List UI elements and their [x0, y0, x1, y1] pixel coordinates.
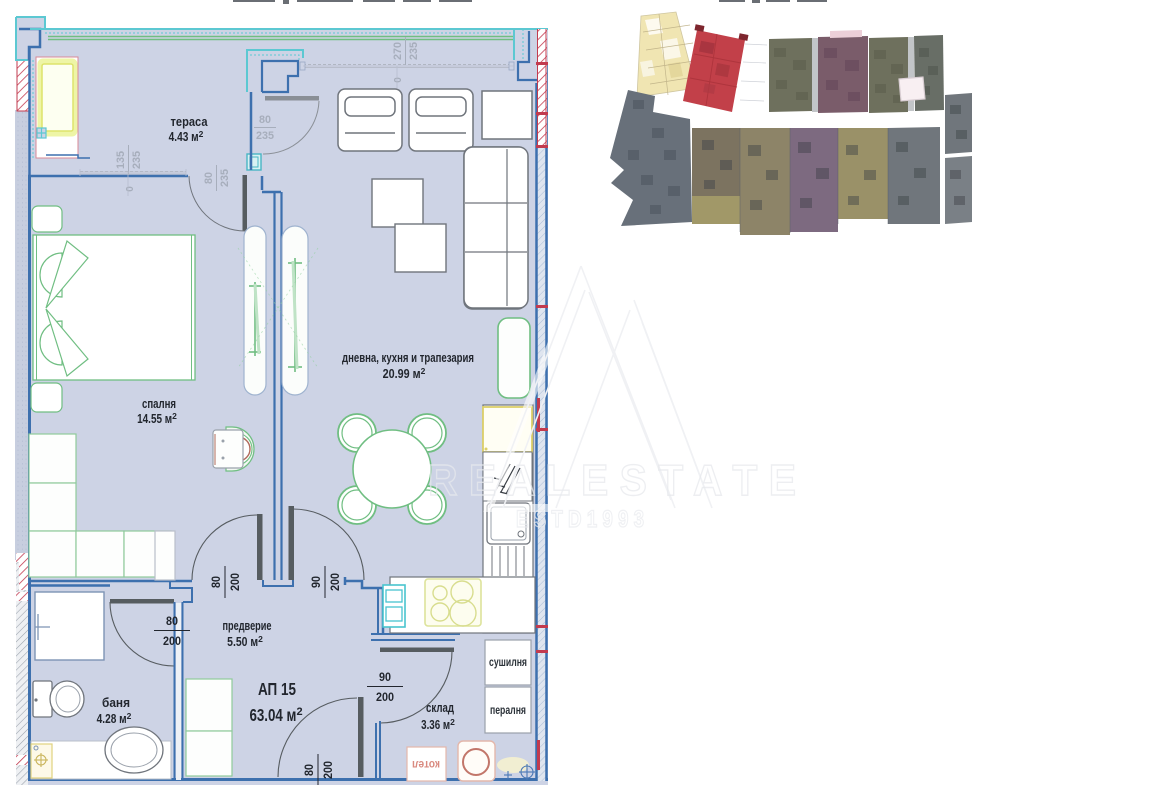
svg-text:63.04 м2: 63.04 м2 — [249, 705, 302, 725]
svg-text:20.99 м2: 20.99 м2 — [383, 366, 426, 381]
svg-text:235: 235 — [256, 130, 274, 142]
svg-text:90: 90 — [379, 672, 391, 684]
svg-text:80: 80 — [166, 616, 178, 628]
svg-text:235: 235 — [131, 151, 143, 169]
svg-text:0: 0 — [125, 186, 136, 192]
svg-text:3.36 м2: 3.36 м2 — [421, 717, 455, 732]
svg-text:270: 270 — [392, 42, 404, 60]
svg-text:склад: склад — [426, 701, 454, 715]
svg-text:АП 15: АП 15 — [258, 679, 296, 699]
svg-text:135: 135 — [115, 151, 127, 169]
svg-text:235: 235 — [219, 169, 231, 187]
svg-text:80: 80 — [259, 114, 271, 126]
svg-text:200: 200 — [323, 761, 335, 779]
svg-text:спалня: спалня — [142, 397, 176, 411]
svg-text:дневна, кухня и трапезария: дневна, кухня и трапезария — [342, 351, 474, 365]
svg-text:0: 0 — [393, 77, 404, 83]
svg-text:R E A L E S T A T E: R E A L E S T A T E — [428, 456, 796, 505]
svg-text:200: 200 — [163, 636, 181, 648]
svg-text:80: 80 — [211, 576, 223, 588]
svg-text:14.55 м2: 14.55 м2 — [137, 411, 177, 426]
svg-text:90: 90 — [311, 576, 323, 588]
svg-text:котел: котел — [412, 758, 440, 772]
svg-text:тераса: тераса — [171, 115, 209, 129]
svg-text:80: 80 — [203, 172, 215, 184]
svg-text:E S T D 1 9 9 3: E S T D 1 9 9 3 — [516, 506, 644, 533]
svg-text:200: 200 — [230, 573, 242, 591]
svg-text:235: 235 — [408, 42, 420, 60]
svg-text:200: 200 — [376, 692, 394, 704]
svg-text:80: 80 — [304, 764, 316, 776]
svg-text:4.28 м2: 4.28 м2 — [97, 711, 132, 726]
svg-text:предверие: предверие — [223, 619, 272, 633]
svg-text:5.50 м2: 5.50 м2 — [227, 634, 263, 649]
svg-text:4.43 м2: 4.43 м2 — [169, 129, 204, 144]
svg-text:баня: баня — [102, 696, 130, 710]
svg-text:200: 200 — [330, 573, 342, 591]
svg-text:сушилня: сушилня — [489, 657, 527, 669]
svg-text:пералня: пералня — [490, 705, 526, 717]
